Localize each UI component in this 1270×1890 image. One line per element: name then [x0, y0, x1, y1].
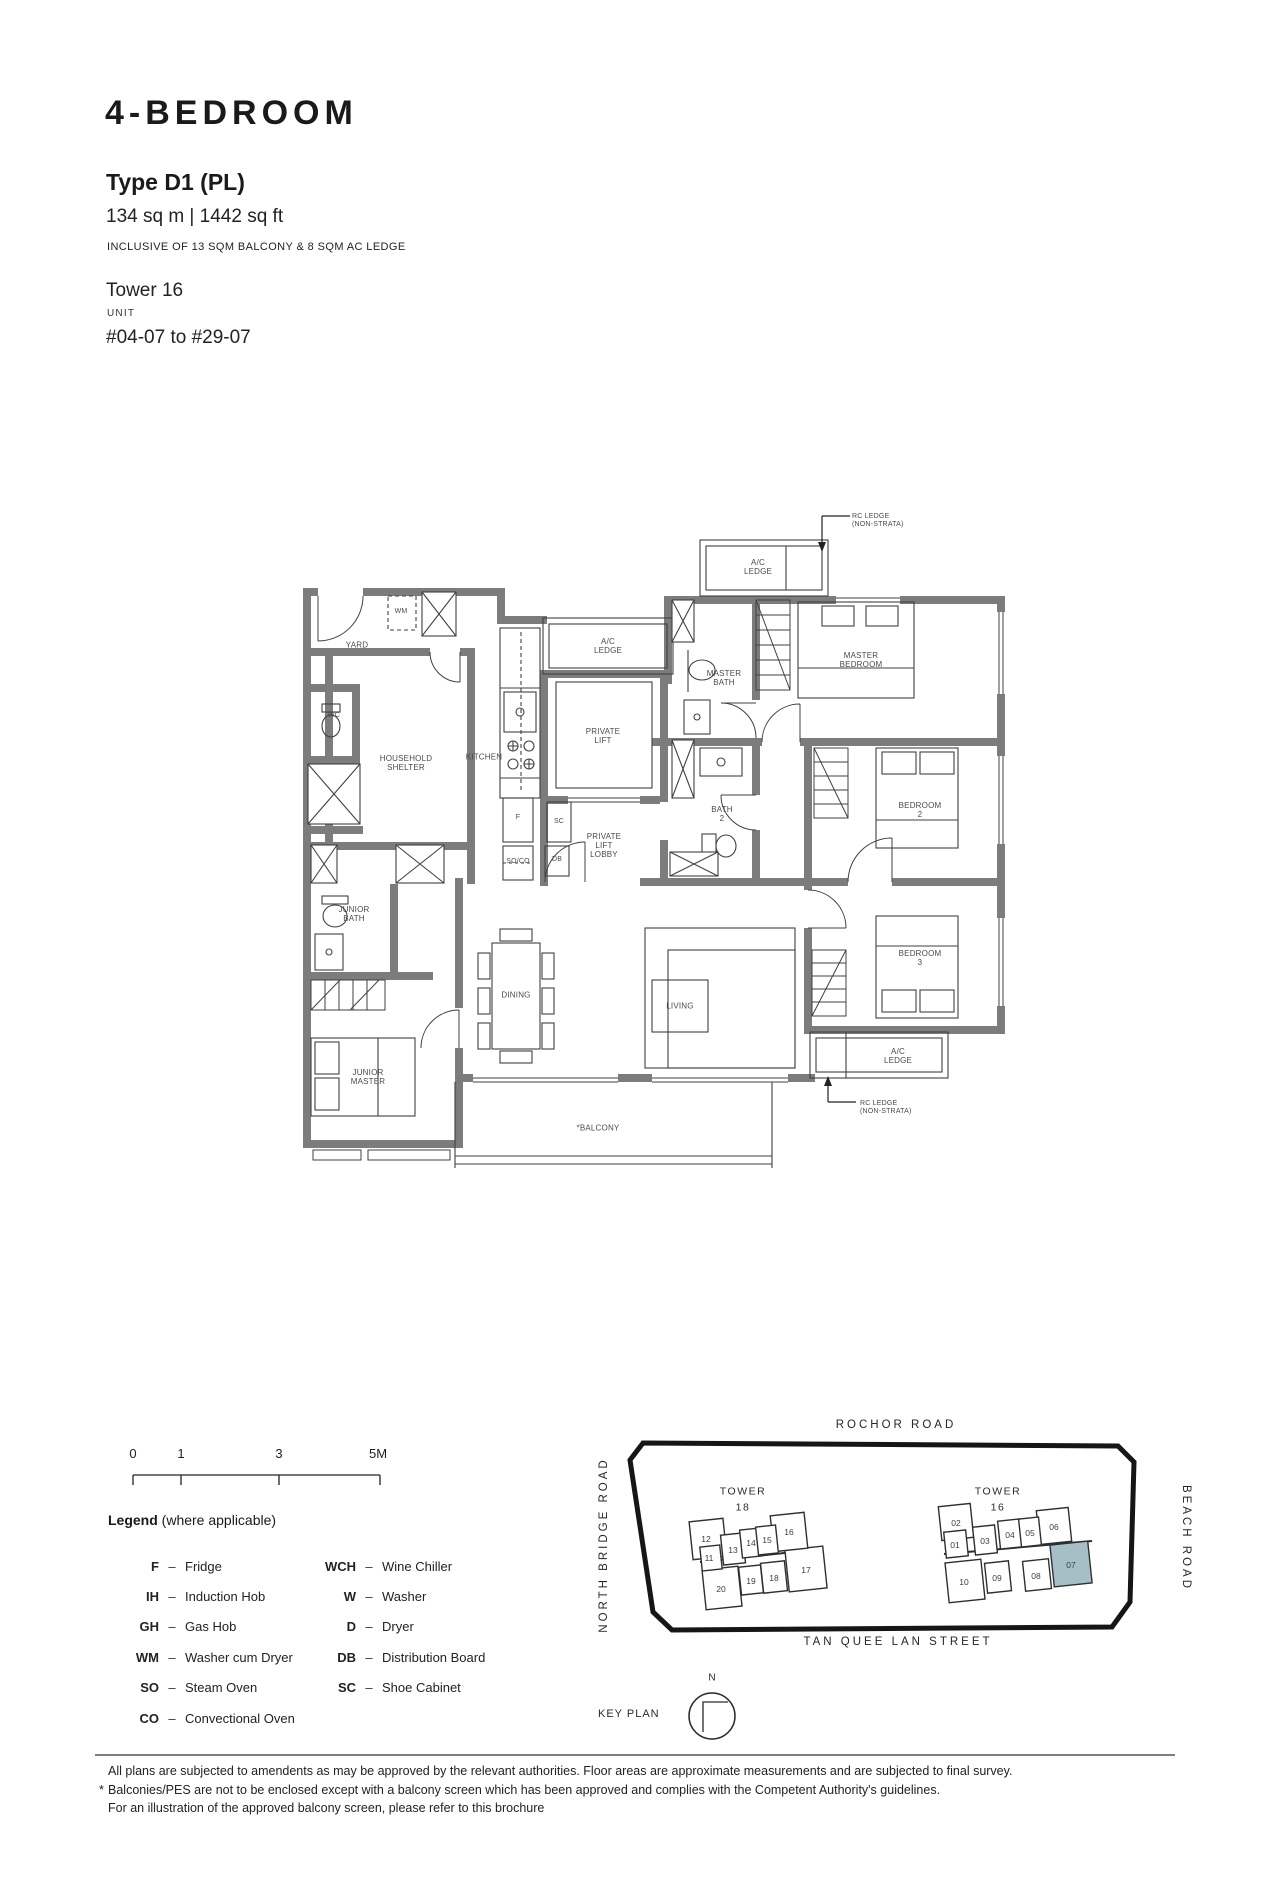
keyplan-unit-14: 14	[746, 1538, 755, 1548]
room-label-so-co: SO/CO	[506, 858, 530, 866]
legend-name: Shoe Cabinet	[382, 1680, 461, 1695]
service-shafts	[308, 592, 718, 883]
legend-abbr: W	[300, 1589, 356, 1604]
legend-name: Fridge	[185, 1559, 222, 1574]
room-label-master-bath: MASTER BATH	[707, 669, 742, 687]
room-label-wc: WC	[328, 712, 340, 720]
scale-tick-5m: 5M	[369, 1446, 387, 1461]
legend-name: Dryer	[382, 1619, 414, 1634]
room-label-bedroom-2: BEDROOM 2	[899, 801, 942, 819]
keyplan-unit-04: 04	[1005, 1530, 1014, 1540]
legend-item: W–Washer	[300, 1589, 426, 1604]
legend-item: IH–Induction Hob	[107, 1589, 265, 1604]
keyplan-unit-03: 03	[980, 1536, 989, 1546]
room-label-ac-ledge-top: A/C LEDGE	[594, 637, 622, 655]
north-compass	[689, 1693, 735, 1739]
legend-dash: –	[159, 1589, 185, 1604]
legend-dash: –	[356, 1619, 382, 1634]
legend-name: Washer	[382, 1589, 426, 1604]
legend-name: Distribution Board	[382, 1650, 485, 1665]
room-label-rc-ledge-bottom: RC LEDGE (NON-STRATA)	[860, 1100, 912, 1116]
legend-dash: –	[356, 1589, 382, 1604]
legend-name: Convectional Oven	[185, 1711, 295, 1726]
scale-bar	[133, 1475, 380, 1485]
scale-tick-1: 1	[177, 1446, 184, 1461]
legend-item: SC–Shoe Cabinet	[300, 1680, 461, 1695]
road-label-beach: BEACH ROAD	[1180, 1485, 1192, 1591]
legend-item: WCH–Wine Chiller	[300, 1559, 452, 1574]
room-label-living: LIVING	[666, 1001, 693, 1010]
legend-dash: –	[159, 1559, 185, 1574]
road-label-tan-quee-lan: TAN QUEE LAN STREET	[803, 1636, 992, 1648]
keyplan-unit-11: 11	[705, 1553, 714, 1563]
brochure-page: 4-BEDROOM Type D1 (PL) 134 sq m | 1442 s…	[0, 0, 1270, 1890]
legend-dash: –	[356, 1680, 382, 1695]
legend-item: GH–Gas Hob	[107, 1619, 236, 1634]
room-label-ac-ledge-right: A/C LEDGE	[744, 558, 772, 576]
legend-title-word: Legend	[108, 1512, 158, 1528]
legend-name: Wine Chiller	[382, 1559, 452, 1574]
keyplan-unit-08: 08	[1031, 1571, 1040, 1581]
north-label: N	[708, 1673, 715, 1684]
legend-item: WM–Washer cum Dryer	[107, 1650, 293, 1665]
legend-name: Induction Hob	[185, 1589, 265, 1604]
legend-abbr: WM	[107, 1650, 159, 1665]
legend-item: F–Fridge	[107, 1559, 222, 1574]
room-label-master-bedroom: MASTER BEDROOM	[840, 651, 883, 669]
room-label-fridge: F	[516, 814, 520, 822]
keyplan-unit-01: 01	[950, 1540, 959, 1550]
keyplan-unit-12: 12	[701, 1534, 710, 1544]
keyplan-unit-17: 17	[801, 1565, 810, 1575]
legend-abbr: GH	[107, 1619, 159, 1634]
room-label-kitchen: KITCHEN	[466, 752, 503, 761]
keyplan-drawing	[630, 1443, 1134, 1739]
room-label-ac-ledge-bottom: A/C LEDGE	[884, 1047, 912, 1065]
keyplan-unit-09: 09	[992, 1573, 1001, 1583]
room-label-bath-2: BATH 2	[711, 805, 733, 823]
floorplan-drawing	[0, 0, 1270, 1890]
room-label-balcony: *BALCONY	[577, 1123, 620, 1132]
legend-abbr: D	[300, 1619, 356, 1634]
footer-asterisk: *	[99, 1783, 104, 1797]
keyplan-unit-18: 18	[769, 1573, 778, 1583]
keyplan-unit-07-highlighted: 07	[1066, 1560, 1075, 1570]
room-label-private-lift: PRIVATE LIFT	[586, 727, 620, 745]
keyplan-unit-06: 06	[1049, 1522, 1058, 1532]
room-label-wm: WM	[395, 608, 408, 616]
legend-item: CO–Convectional Oven	[107, 1711, 295, 1726]
legend-name: Gas Hob	[185, 1619, 236, 1634]
legend-abbr: CO	[107, 1711, 159, 1726]
legend-abbr: WCH	[300, 1559, 356, 1574]
keyplan-unit-20: 20	[716, 1584, 725, 1594]
legend-abbr: DB	[300, 1650, 356, 1665]
road-label-north-bridge: NORTH BRIDGE ROAD	[598, 1457, 610, 1632]
legend-abbr: SO	[107, 1680, 159, 1695]
legend-name: Washer cum Dryer	[185, 1650, 293, 1665]
footer-note-3: For an illustration of the approved balc…	[108, 1801, 544, 1815]
legend-title: Legend (where applicable)	[108, 1512, 276, 1528]
footer-note-2: Balconies/PES are not to be enclosed exc…	[108, 1783, 940, 1797]
legend-abbr: F	[107, 1559, 159, 1574]
leader-arrow-top	[818, 542, 826, 552]
keyplan-unit-02: 02	[951, 1518, 960, 1528]
scale-tick-0: 0	[129, 1446, 136, 1461]
legend-abbr: IH	[107, 1589, 159, 1604]
legend-dash: –	[159, 1680, 185, 1695]
scale-tick-3: 3	[275, 1446, 282, 1461]
legend-dash: –	[356, 1650, 382, 1665]
legend-item: DB–Distribution Board	[300, 1650, 485, 1665]
tower-16-units	[938, 1503, 1092, 1602]
keyplan-label: KEY PLAN	[598, 1708, 660, 1720]
keyplan-unit-19: 19	[746, 1576, 755, 1586]
room-label-junior-master: JUNIOR MASTER	[351, 1068, 386, 1086]
tower-16-label: TOWER 16	[975, 1484, 1021, 1516]
keyplan-unit-05: 05	[1025, 1528, 1034, 1538]
room-label-bedroom-3: BEDROOM 3	[899, 949, 942, 967]
legend-dash: –	[356, 1559, 382, 1574]
north-compass-mark	[703, 1702, 728, 1732]
room-label-db: DB	[552, 856, 562, 864]
room-label-junior-bath: JUNIOR BATH	[339, 905, 370, 923]
room-label-dining: DINING	[501, 990, 530, 999]
road-label-rochor: ROCHOR ROAD	[836, 1419, 957, 1431]
keyplan-unit-10: 10	[959, 1577, 968, 1587]
legend-dash: –	[159, 1650, 185, 1665]
legend-dash: –	[159, 1619, 185, 1634]
tower-18-label: TOWER 18	[720, 1484, 766, 1516]
room-label-shoe-cabinet: SC	[554, 818, 564, 826]
legend-title-note: (where applicable)	[162, 1512, 276, 1528]
room-label-yard: YARD	[346, 640, 368, 649]
keyplan-unit-15: 15	[762, 1535, 771, 1545]
legend-item: SO–Steam Oven	[107, 1680, 257, 1695]
keyplan-unit-16: 16	[784, 1527, 793, 1537]
legend-dash: –	[159, 1711, 185, 1726]
keyplan-unit-13: 13	[728, 1545, 737, 1555]
room-label-private-lift-lobby: PRIVATE LIFT LOBBY	[587, 832, 621, 860]
legend-name: Steam Oven	[185, 1680, 257, 1695]
room-label-household-shelter: HOUSEHOLD SHELTER	[380, 754, 432, 772]
footer-note-1: All plans are subjected to amendents as …	[108, 1764, 1012, 1778]
legend-abbr: SC	[300, 1680, 356, 1695]
room-label-rc-ledge-top: RC LEDGE (NON-STRATA)	[852, 513, 904, 529]
legend-item: D–Dryer	[300, 1619, 414, 1634]
